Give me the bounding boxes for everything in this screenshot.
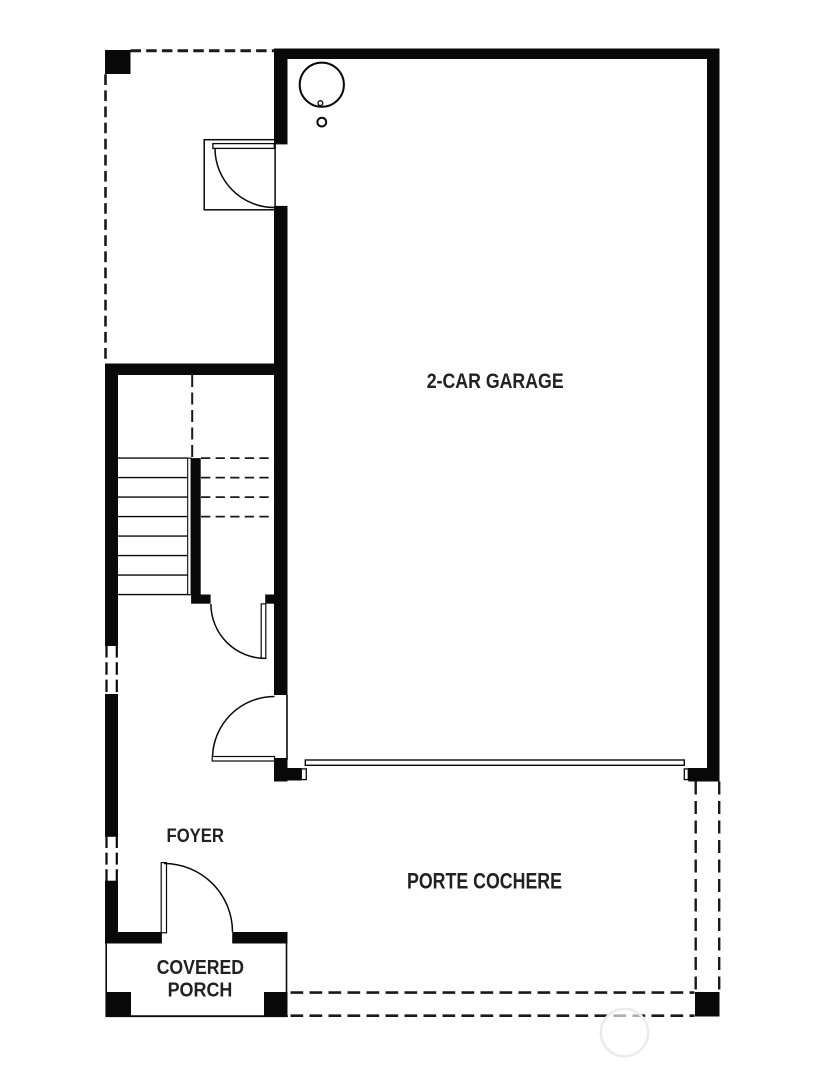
svg-text:PORCH: PORCH bbox=[168, 980, 233, 1002]
svg-text:2-CAR GARAGE: 2-CAR GARAGE bbox=[427, 370, 564, 393]
svg-text:FOYER: FOYER bbox=[167, 825, 225, 847]
svg-text:COVERED: COVERED bbox=[157, 957, 244, 979]
svg-text:PORTE COCHERE: PORTE COCHERE bbox=[407, 869, 562, 894]
